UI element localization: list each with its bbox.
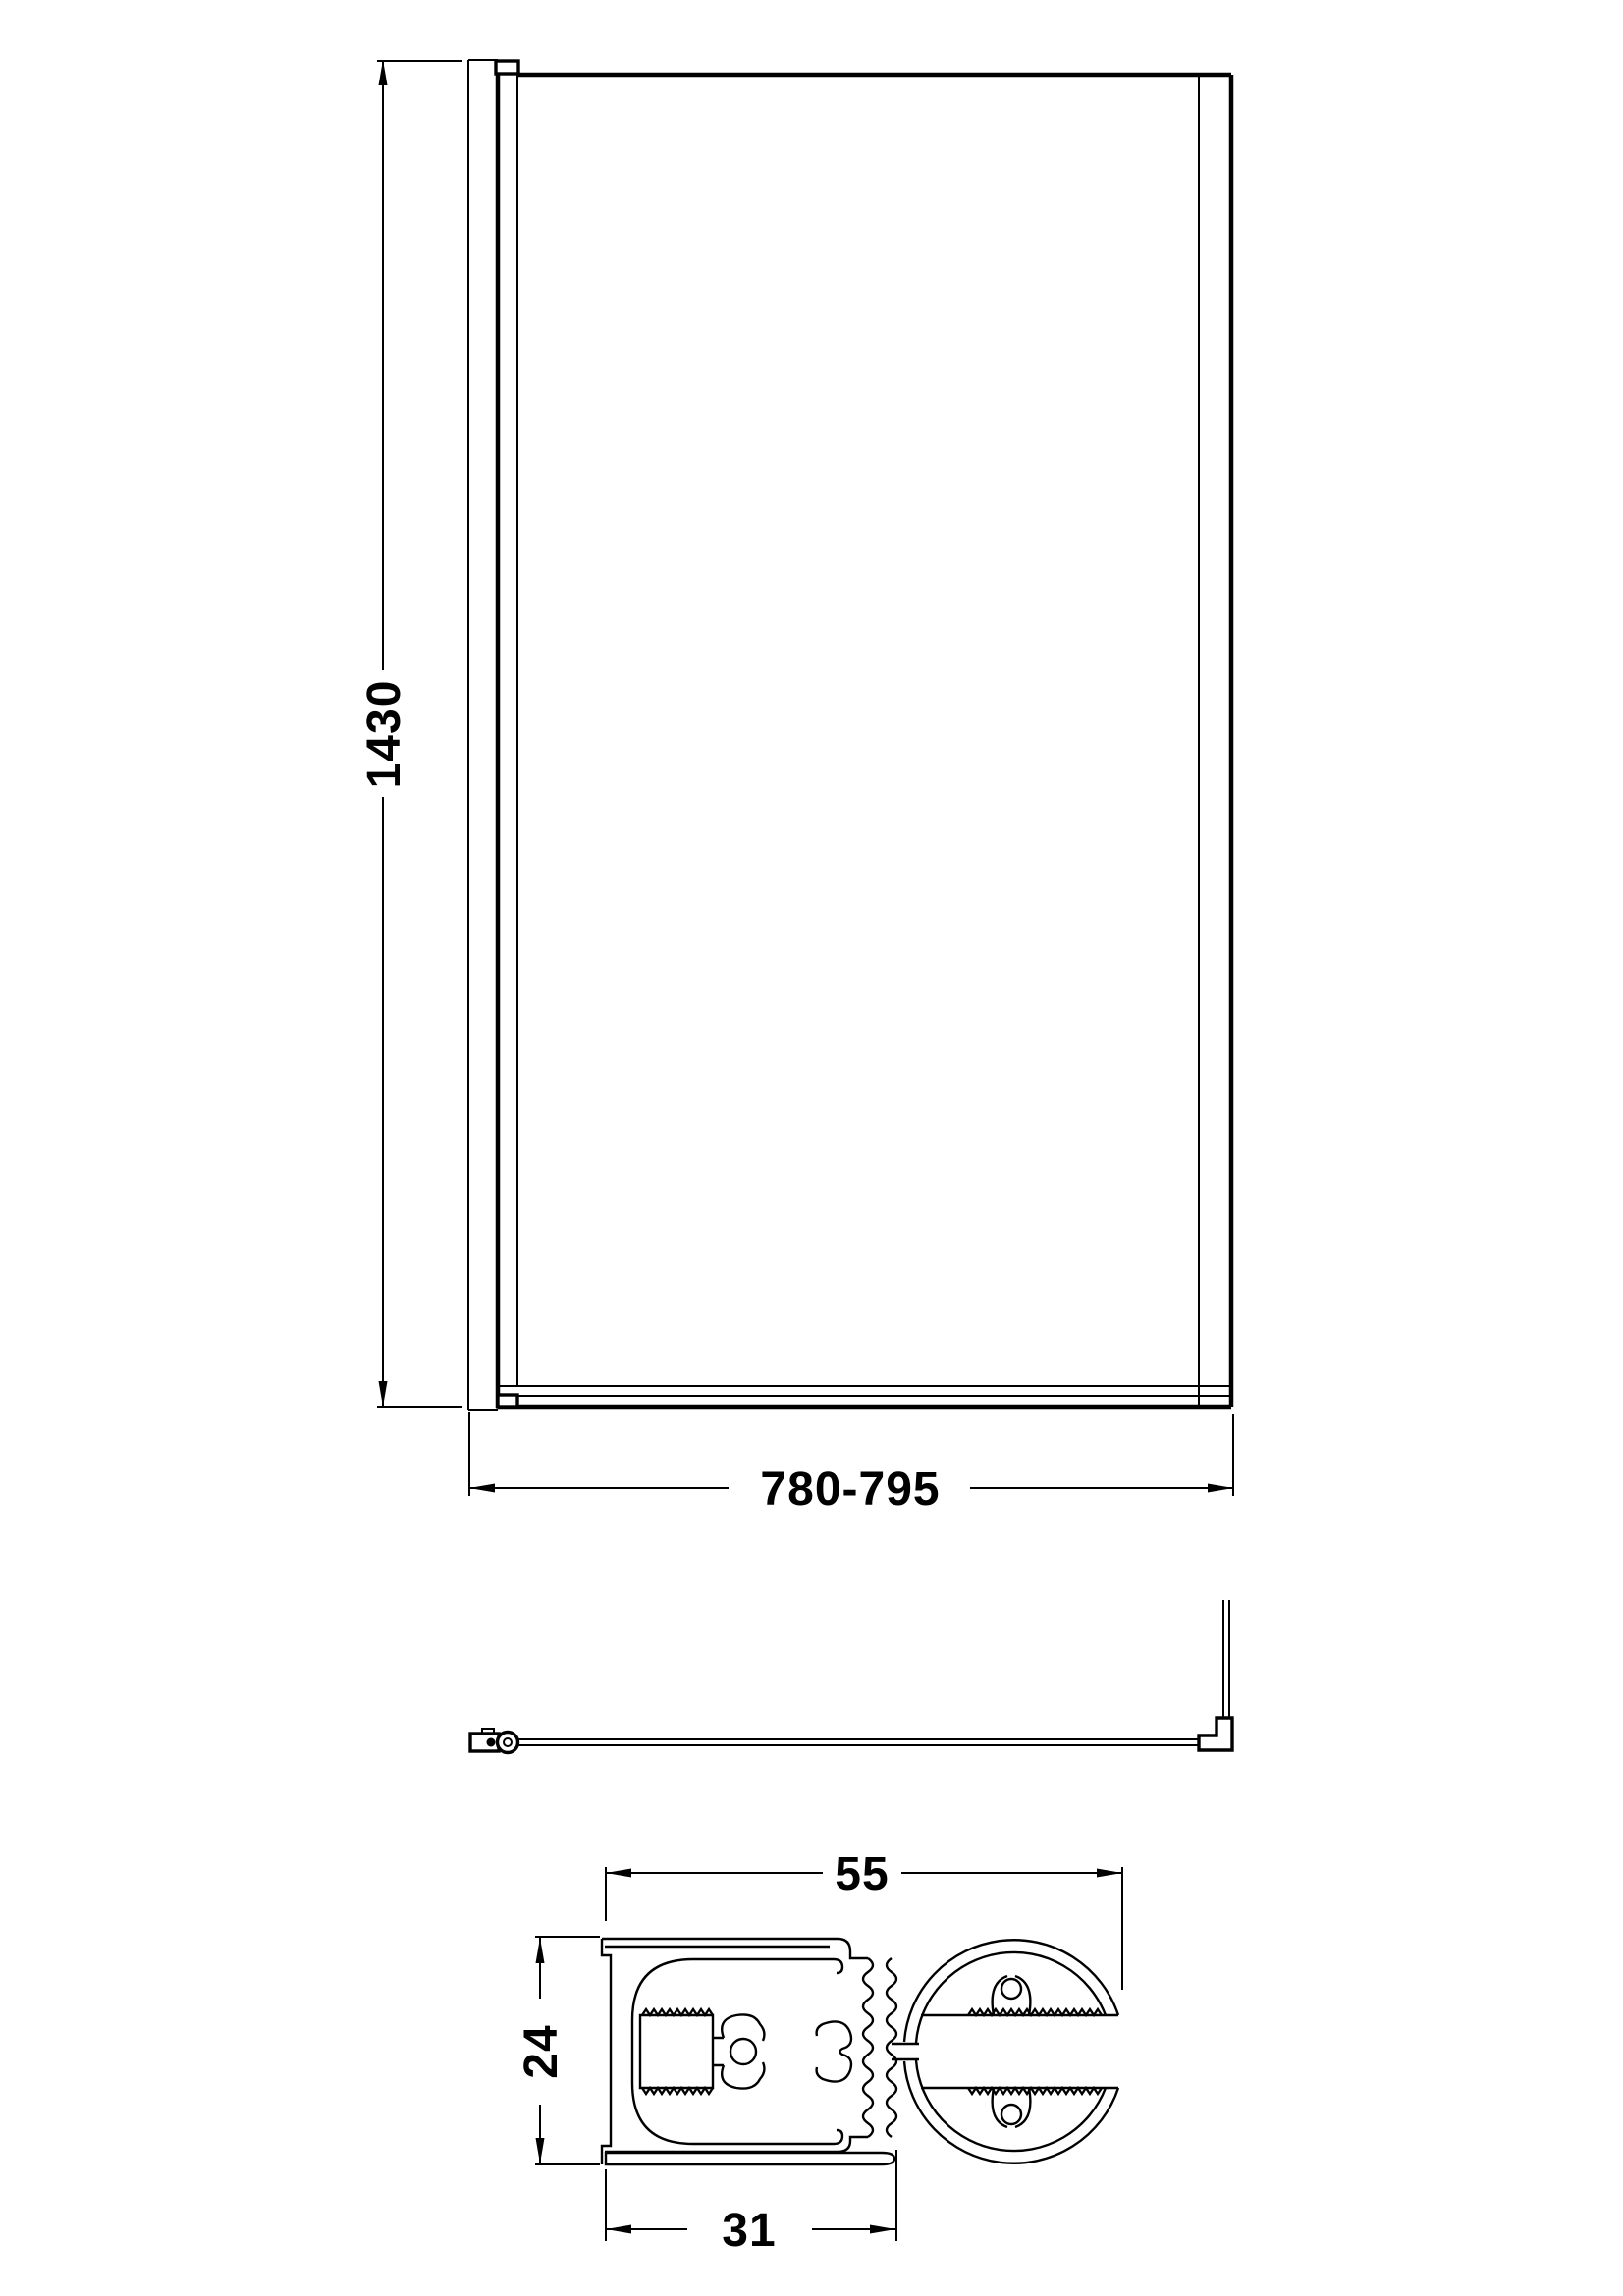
plan-pivot-head [498, 1733, 518, 1753]
sheet-background [0, 0, 1623, 2296]
height-dimension-label: 1430 [358, 680, 410, 789]
bottom-clip [498, 1395, 517, 1407]
plan-fitting-screw [487, 1738, 496, 1747]
section-width-label: 55 [835, 1848, 889, 1900]
drawing-sheet: 1430 780-795 [0, 0, 1623, 2296]
section-channel-label: 31 [722, 2205, 776, 2257]
technical-drawing: 1430 780-795 [0, 0, 1623, 2296]
top-clip [496, 61, 518, 74]
section-depth-label: 24 [515, 2024, 568, 2078]
width-dimension-label: 780-795 [760, 1464, 940, 1516]
